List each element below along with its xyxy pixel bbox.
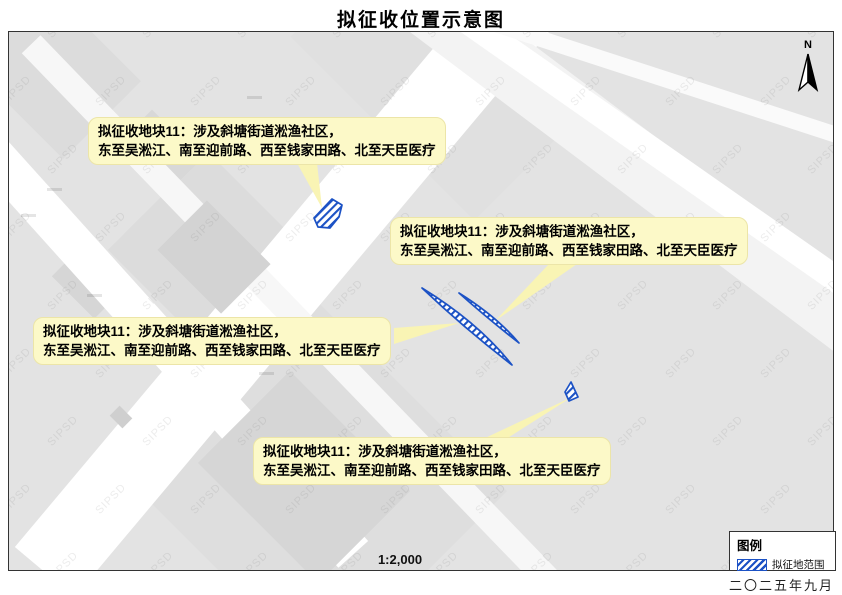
leader-wedge: [495, 264, 577, 321]
legend-item-label: 拟征地范围: [772, 557, 825, 572]
legend-box: 图例 拟征地范围: [729, 531, 836, 571]
callout-line: 拟征收地块11：涉及斜塘街道淞渔社区，: [263, 442, 601, 461]
callout-line: 东至吴淞江、南至迎前路、西至钱家田路、北至天臣医疗: [400, 241, 738, 260]
hatch-swatch-icon: [737, 559, 767, 571]
callout-line: 东至吴淞江、南至迎前路、西至钱家田路、北至天臣医疗: [98, 141, 436, 160]
expropriation-parcel: [314, 199, 342, 228]
north-label: N: [795, 40, 821, 51]
callout-box: 拟征收地块11：涉及斜塘街道淞渔社区， 东至吴淞江、南至迎前路、西至钱家田路、北…: [33, 317, 391, 365]
expropriation-parcel: [459, 293, 519, 343]
map-canvas: SIPSDSIPSDSIPSDSIPSDSIPSDSIPSDSIPSDSIPSD…: [8, 31, 834, 571]
map-overlay-svg: [9, 32, 834, 571]
callout-box: 拟征收地块11：涉及斜塘街道淞渔社区， 东至吴淞江、南至迎前路、西至钱家田路、北…: [88, 117, 446, 165]
date-text: 二〇二五年九月: [729, 575, 834, 594]
callout-line: 东至吴淞江、南至迎前路、西至钱家田路、北至天臣医疗: [43, 341, 381, 360]
legend-item: 拟征地范围: [737, 557, 828, 572]
leader-wedge: [483, 397, 572, 439]
north-arrow: N: [795, 40, 821, 100]
page: 拟征收位置示意图: [0, 0, 842, 595]
callout-line: 拟征收地块11：涉及斜塘街道淞渔社区，: [98, 122, 436, 141]
callout-line: 东至吴淞江、南至迎前路、西至钱家田路、北至天臣医疗: [263, 461, 601, 480]
leader-wedge: [394, 323, 459, 344]
leader-wedge: [297, 163, 322, 208]
north-arrow-icon: [795, 51, 821, 95]
legend-title: 图例: [737, 535, 828, 554]
scale-text: 1:2,000: [350, 552, 450, 567]
callout-box: 拟征收地块11：涉及斜塘街道淞渔社区， 东至吴淞江、南至迎前路、西至钱家田路、北…: [253, 437, 611, 485]
callout-line: 拟征收地块11：涉及斜塘街道淞渔社区，: [400, 222, 738, 241]
callout-box: 拟征收地块11：涉及斜塘街道淞渔社区， 东至吴淞江、南至迎前路、西至钱家田路、北…: [390, 217, 748, 265]
callout-line: 拟征收地块11：涉及斜塘街道淞渔社区，: [43, 322, 381, 341]
page-title: 拟征收位置示意图: [0, 5, 842, 32]
expropriation-parcel: [565, 382, 578, 401]
